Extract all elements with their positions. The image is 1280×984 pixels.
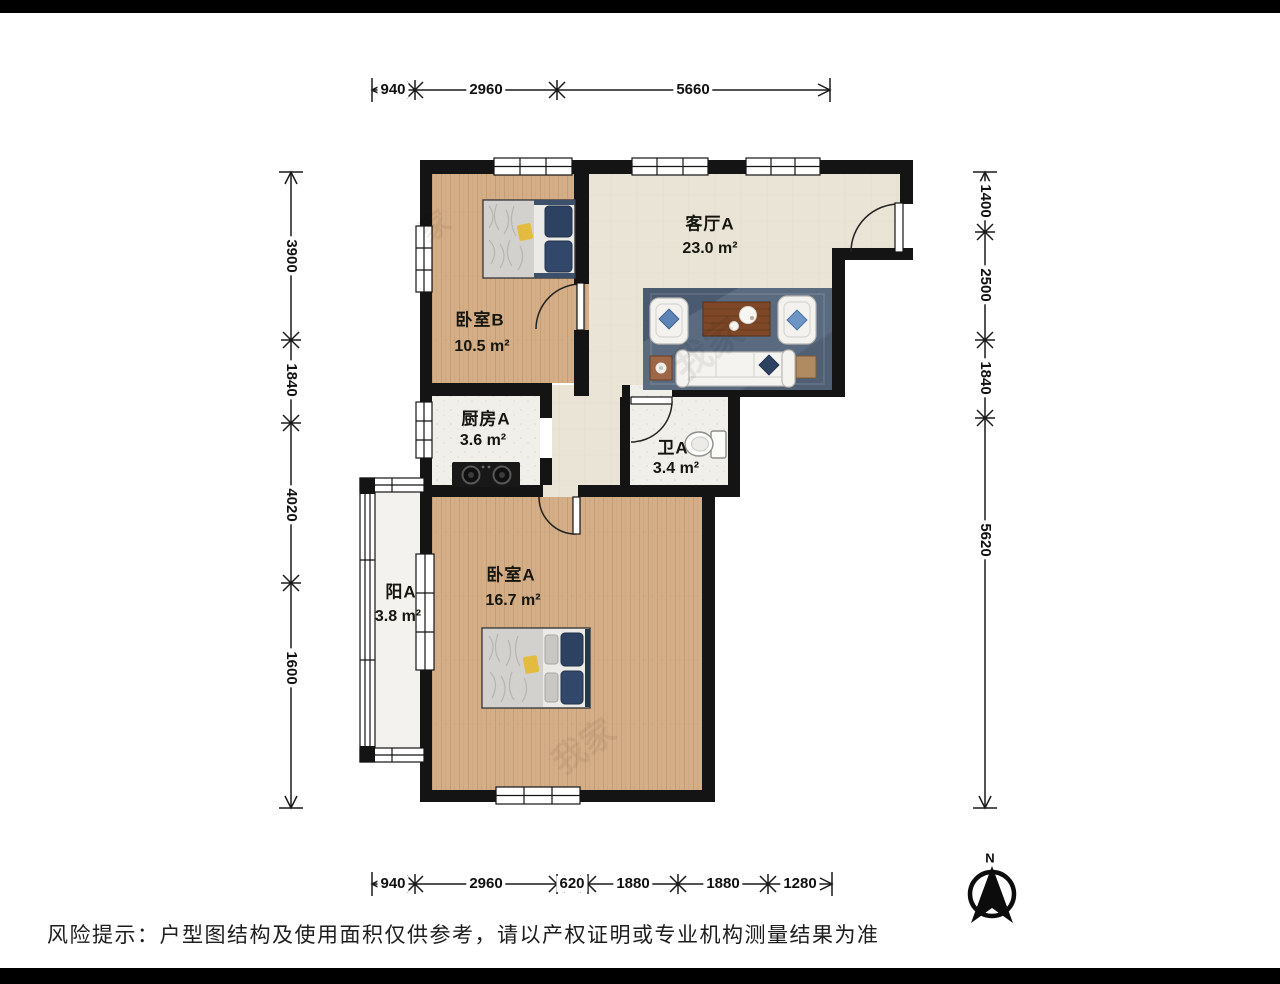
disclaimer-text: 风险提示：户型图结构及使用面积仅供参考，请以产权证明或专业机构测量结果为准 xyxy=(47,919,880,949)
window-living-north-1 xyxy=(632,158,708,175)
dim-bottom-1: 940 xyxy=(377,876,408,892)
balcony-post-top-icon xyxy=(360,478,375,494)
bed-icon-bedroom-a xyxy=(482,628,590,708)
bathroom-label: 卫A xyxy=(657,434,688,459)
dim-left-2: 1840 xyxy=(283,360,299,399)
dim-right-4: 5620 xyxy=(977,520,993,559)
dim-bottom-3: 620 xyxy=(556,876,587,892)
window-kitchen-west xyxy=(416,402,432,458)
balcony-area: 3.8 m² xyxy=(375,608,421,626)
side-table-right-icon xyxy=(796,356,816,378)
wall-bedroomb-living-upper xyxy=(574,174,589,284)
north-compass-icon xyxy=(970,866,1014,923)
opening-bedroom-a xyxy=(543,485,578,497)
bedroom-a-area: 16.7 m² xyxy=(485,592,540,610)
balcony-post-bottom-icon xyxy=(360,746,375,762)
wall-east-upper xyxy=(900,160,913,204)
wall-bath-west xyxy=(620,397,630,485)
dim-left-1: 3900 xyxy=(283,236,299,275)
wall-bedroom-a-east xyxy=(702,497,715,802)
wall-bath-east xyxy=(728,385,740,497)
wall-bedroomb-living-lower xyxy=(574,330,589,396)
living-room-area: 23.0 m² xyxy=(682,240,737,258)
dim-bottom-2: 2960 xyxy=(466,876,505,892)
dim-bottom-4: 1880 xyxy=(613,876,652,892)
balcony-glazing-west xyxy=(360,478,375,762)
dim-right-1: 1400 xyxy=(977,181,993,220)
dimension-line-top xyxy=(372,78,830,102)
dim-right-2: 2500 xyxy=(977,265,993,304)
balcony-label: 阳A xyxy=(385,578,416,603)
dimension-line-bottom xyxy=(372,872,832,896)
bedroom-b-area: 10.5 m² xyxy=(454,338,509,356)
toilet-icon xyxy=(685,431,726,458)
bedroom-b-label: 卧室B xyxy=(455,306,504,331)
north-label: N xyxy=(985,851,994,866)
hallway-floor xyxy=(552,385,622,485)
dim-bottom-6: 1280 xyxy=(780,876,819,892)
window-bedroom-b-north xyxy=(494,158,572,175)
dim-left-4: 1600 xyxy=(283,648,299,687)
wall-living-east-lower xyxy=(832,248,845,397)
kitchen-label: 厨房A xyxy=(461,405,510,430)
living-room-label: 客厅A xyxy=(685,210,734,235)
dim-left-3: 4020 xyxy=(283,485,299,524)
window-bedroom-a-south xyxy=(496,787,580,804)
armchair-right-icon xyxy=(778,296,816,344)
floorplan-page: 客厅A 23.0 m² 卧室B 10.5 m² 厨房A 3.6 m² 卫A 3.… xyxy=(0,0,1280,984)
bathroom-area: 3.4 m² xyxy=(653,460,699,478)
floorplan-drawing xyxy=(0,0,1280,984)
bed-icon-bedroom-b xyxy=(483,200,575,278)
dim-right-3: 1840 xyxy=(977,358,993,397)
dim-bottom-5: 1880 xyxy=(703,876,742,892)
bedroom-a-label: 卧室A xyxy=(486,561,535,586)
dim-top-3: 5660 xyxy=(673,82,712,98)
wall-kitchen-hall-upper xyxy=(540,396,552,418)
kitchen-area: 3.6 m² xyxy=(460,432,506,450)
dim-top-2: 2960 xyxy=(466,82,505,98)
window-living-north-2 xyxy=(746,158,820,175)
wall-bedroomb-kitchen xyxy=(420,383,552,396)
stove-icon xyxy=(452,462,520,487)
dim-top-1: 940 xyxy=(377,82,408,98)
